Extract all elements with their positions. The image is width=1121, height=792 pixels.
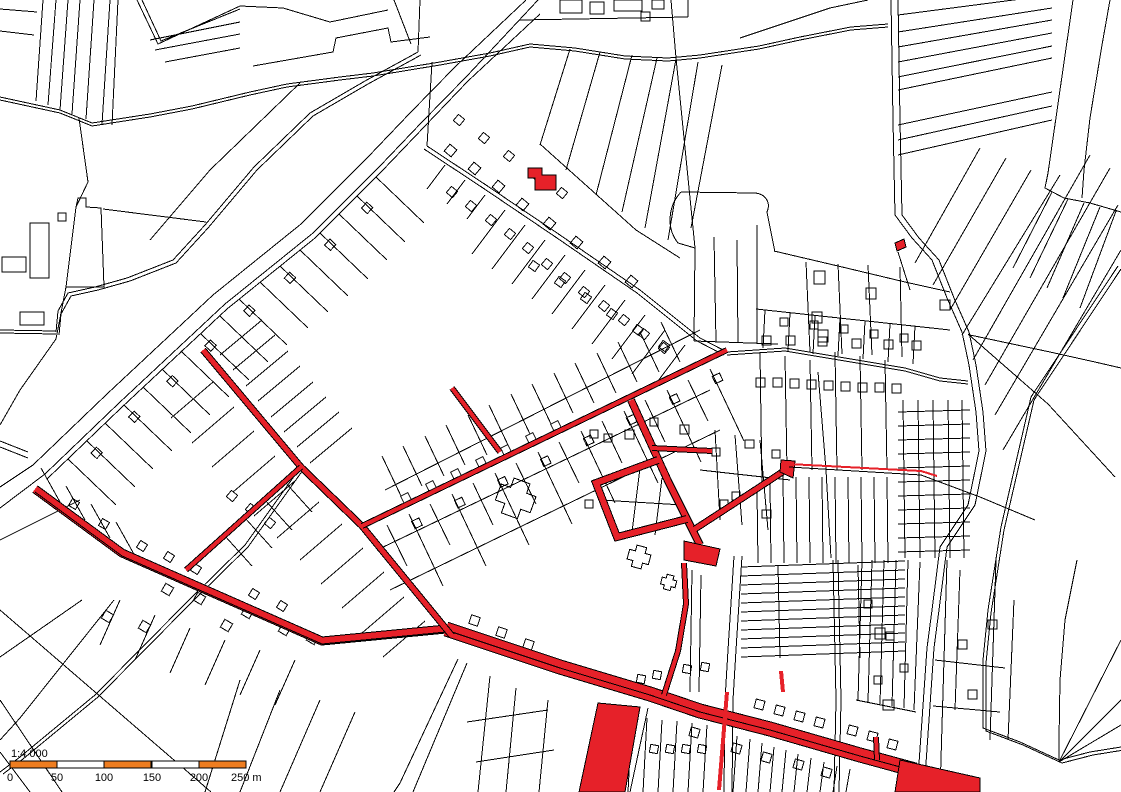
svg-text:50: 50 — [51, 772, 63, 784]
svg-text:200: 200 — [190, 772, 208, 784]
svg-text:0: 0 — [7, 772, 13, 784]
svg-text:150: 150 — [143, 772, 161, 784]
svg-text:250 m: 250 m — [231, 772, 262, 784]
svg-text:100: 100 — [95, 772, 113, 784]
svg-text:1:4 000: 1:4 000 — [11, 748, 48, 760]
